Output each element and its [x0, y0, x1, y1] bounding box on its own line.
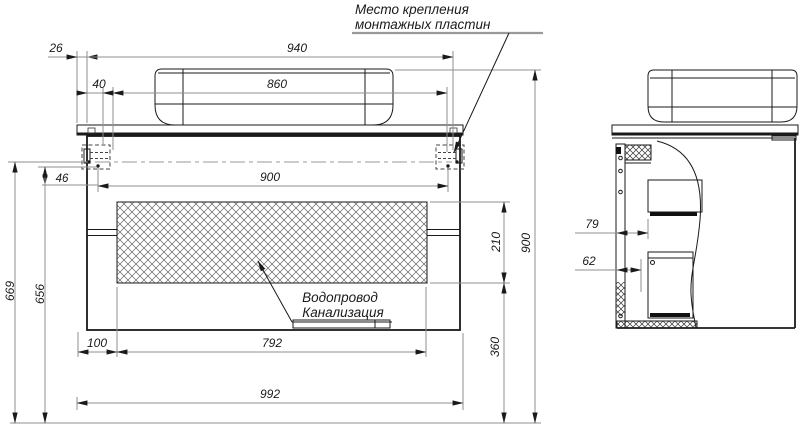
curved-front-profile — [657, 141, 701, 328]
front-view — [77, 69, 464, 330]
svg-text:360: 360 — [488, 337, 502, 357]
dim-62: 62 — [575, 254, 641, 270]
side-view — [612, 70, 798, 328]
svg-text:46: 46 — [56, 173, 69, 185]
svg-text:792: 792 — [262, 336, 282, 350]
dim-940: 940 — [87, 41, 453, 57]
mounting-leader-line — [454, 33, 509, 152]
dim-40: 40 — [77, 77, 113, 93]
vanity-drawing: 26 940 40 860 900 46 669 — [0, 0, 800, 427]
dim-656: 656 — [33, 167, 47, 423]
svg-text:Канализация: Канализация — [302, 305, 383, 320]
dim-79: 79 — [575, 217, 648, 233]
dim-900-vertical: 900 — [519, 70, 535, 423]
svg-text:Водопровод: Водопровод — [302, 290, 378, 305]
dim-100: 100 — [78, 336, 117, 352]
bottom-detail — [293, 320, 390, 328]
dim-360: 360 — [488, 283, 504, 423]
dim-210: 210 — [489, 202, 504, 283]
dim-26: 26 — [48, 41, 97, 57]
svg-text:900: 900 — [260, 170, 280, 184]
dim-900-horizontal: 900 — [98, 170, 448, 186]
svg-text:100: 100 — [87, 336, 107, 350]
lower-drawer-side — [648, 252, 693, 318]
dim-669: 669 — [3, 162, 17, 423]
svg-text:940: 940 — [287, 41, 307, 55]
svg-text:79: 79 — [585, 217, 599, 231]
svg-text:монтажных пластин: монтажных пластин — [355, 17, 491, 32]
wall-rail — [616, 144, 625, 328]
dim-792: 792 — [117, 336, 426, 352]
dim-860: 860 — [113, 77, 447, 93]
svg-text:Место крепления: Место крепления — [355, 2, 469, 17]
upper-drawer-side — [648, 180, 702, 216]
plumbing-zone — [117, 202, 427, 283]
svg-text:62: 62 — [582, 254, 596, 268]
svg-text:26: 26 — [48, 41, 63, 55]
drawer-slide-upper — [650, 212, 697, 216]
technical-drawing-page: 26 940 40 860 900 46 669 — [0, 0, 800, 427]
mounting-plate-side — [625, 145, 651, 163]
svg-text:210: 210 — [489, 232, 503, 253]
washbasin-side — [648, 70, 797, 122]
svg-text:656: 656 — [33, 284, 47, 304]
svg-text:40: 40 — [92, 77, 106, 91]
drawer-slide-lower — [650, 313, 690, 317]
dim-992: 992 — [77, 387, 463, 403]
countertop-front — [77, 125, 463, 135]
svg-text:860: 860 — [267, 77, 287, 91]
bottom-hatch-strip — [617, 321, 697, 328]
dim-46: 46 — [45, 173, 69, 185]
fixing-clip-left — [88, 128, 95, 133]
svg-text:669: 669 — [3, 281, 17, 301]
svg-text:900: 900 — [519, 233, 533, 253]
svg-text:992: 992 — [260, 387, 280, 401]
